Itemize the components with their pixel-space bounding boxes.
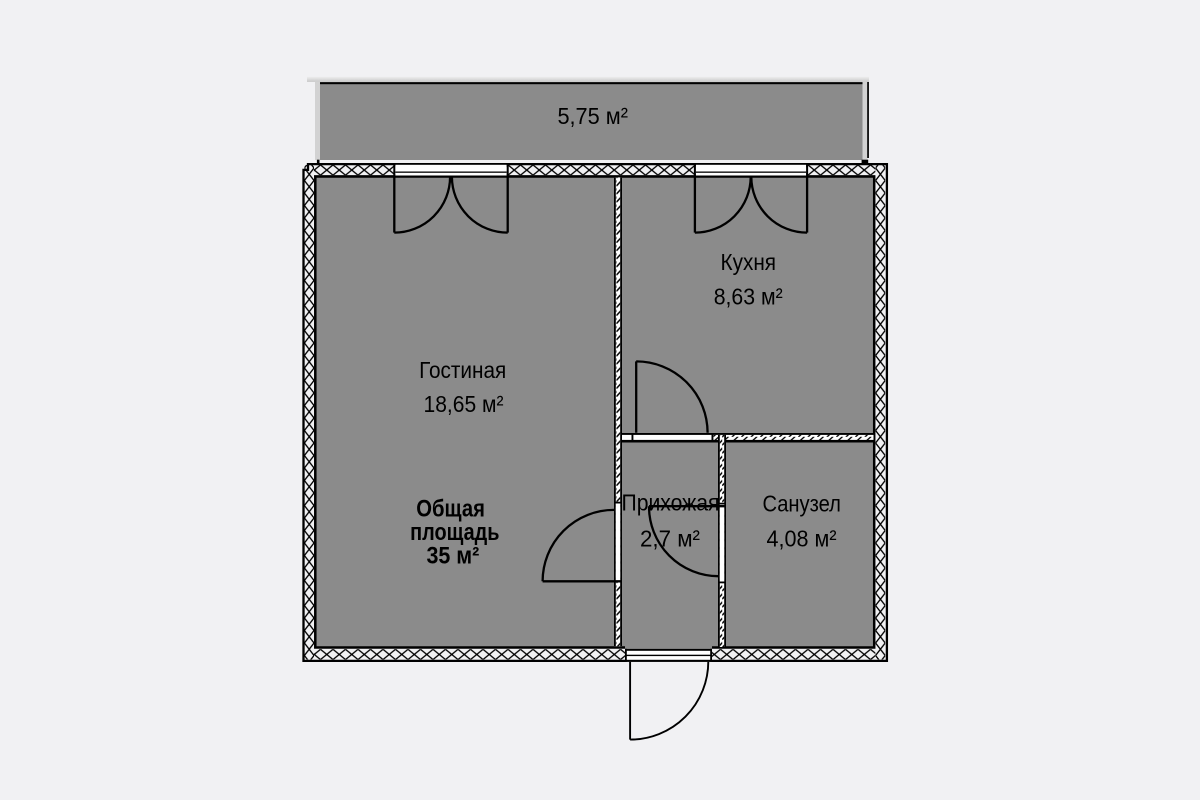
svg-text:8,63 м²: 8,63 м²: [714, 284, 783, 310]
svg-text:5,75 м²: 5,75 м²: [557, 103, 628, 129]
svg-text:2,7 м²: 2,7 м²: [640, 526, 700, 552]
svg-text:18,65 м²: 18,65 м²: [424, 391, 504, 417]
svg-text:Санузел: Санузел: [762, 491, 841, 517]
svg-text:4,08 м²: 4,08 м²: [767, 526, 837, 552]
svg-text:Гостиная: Гостиная: [419, 357, 506, 383]
svg-text:Кухня: Кухня: [721, 249, 777, 275]
svg-text:Прихожая: Прихожая: [622, 490, 720, 516]
svg-text:35 м²: 35 м²: [426, 543, 479, 570]
